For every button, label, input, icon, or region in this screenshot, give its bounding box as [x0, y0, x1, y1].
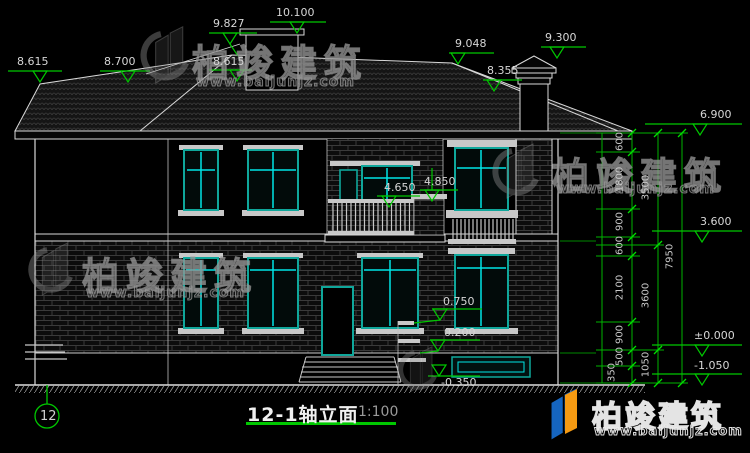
entry-door	[322, 287, 353, 355]
elev-parapet-cap: 4.850	[424, 176, 456, 188]
watermark-url-top: www.baijunjz.com	[196, 74, 355, 90]
elev-roof-right-lower: 8.355	[487, 65, 519, 77]
elev-ground-floor: ±0.000	[694, 330, 735, 342]
brand-url-bottom: www.baijunjz.com	[594, 424, 743, 439]
drawing-title: 12-1轴立面	[247, 400, 359, 427]
watermark-url-right: www.baijunjz.com	[556, 181, 715, 197]
dim-inner-600b: 600	[615, 224, 626, 268]
elev-site-ground: -1.050	[694, 360, 729, 372]
elev-chimney-top: 9.300	[545, 32, 577, 44]
axis-bubble-label: 12	[40, 409, 57, 424]
ground-line	[15, 385, 645, 393]
dim-inner-2100: 2100	[615, 266, 626, 310]
elev-dormer-base: 8.615	[213, 56, 245, 68]
elev-ridge-left: 9.827	[213, 18, 245, 30]
elev-ridge-right: 9.048	[455, 38, 487, 50]
balcony-pier	[411, 194, 447, 235]
drawing-scale: 1:100	[358, 404, 398, 420]
elev-second-floor: 3.600	[700, 216, 732, 228]
dim-inner-1800: 1800	[615, 158, 626, 202]
elev-left-wing-eave: 8.700	[104, 56, 136, 68]
elevation-drawing-canvas: 柏竣建筑 www.baijunjz.com 柏竣建筑 www.baijunjz.…	[0, 0, 750, 453]
elev-balcony-rail: 4.650	[384, 182, 416, 194]
brand-logo-color	[541, 389, 579, 439]
elev-porch-mid: 0.200	[444, 327, 476, 339]
chimney	[512, 56, 556, 235]
watermark-url-left: www.baijunjz.com	[86, 285, 245, 301]
window-2f-left-wide	[242, 145, 304, 216]
watermark-logo-top	[144, 27, 186, 83]
entry-steps	[299, 357, 401, 382]
elev-right-eave: 6.900	[700, 109, 732, 121]
dim-outer-7950: 7950	[665, 235, 676, 279]
elev-roof-left-edge: 8.615	[17, 56, 49, 68]
dim-mid-3600: 3600	[641, 274, 652, 318]
dim-inner-350: 350	[607, 351, 618, 395]
window-2f-left-small	[178, 145, 224, 216]
elev-dormer-top: 10.100	[276, 7, 315, 19]
plinth-vent-window	[452, 357, 530, 377]
dim-mid-1050: 1050	[641, 343, 652, 387]
elev-porch-lower: -0.350	[441, 377, 476, 389]
elev-porch-upper: 0.750	[443, 296, 475, 308]
watermark-logo-steps	[401, 347, 435, 392]
window-1f-right	[446, 248, 518, 334]
dim-mid-3500: 3500	[641, 166, 652, 210]
